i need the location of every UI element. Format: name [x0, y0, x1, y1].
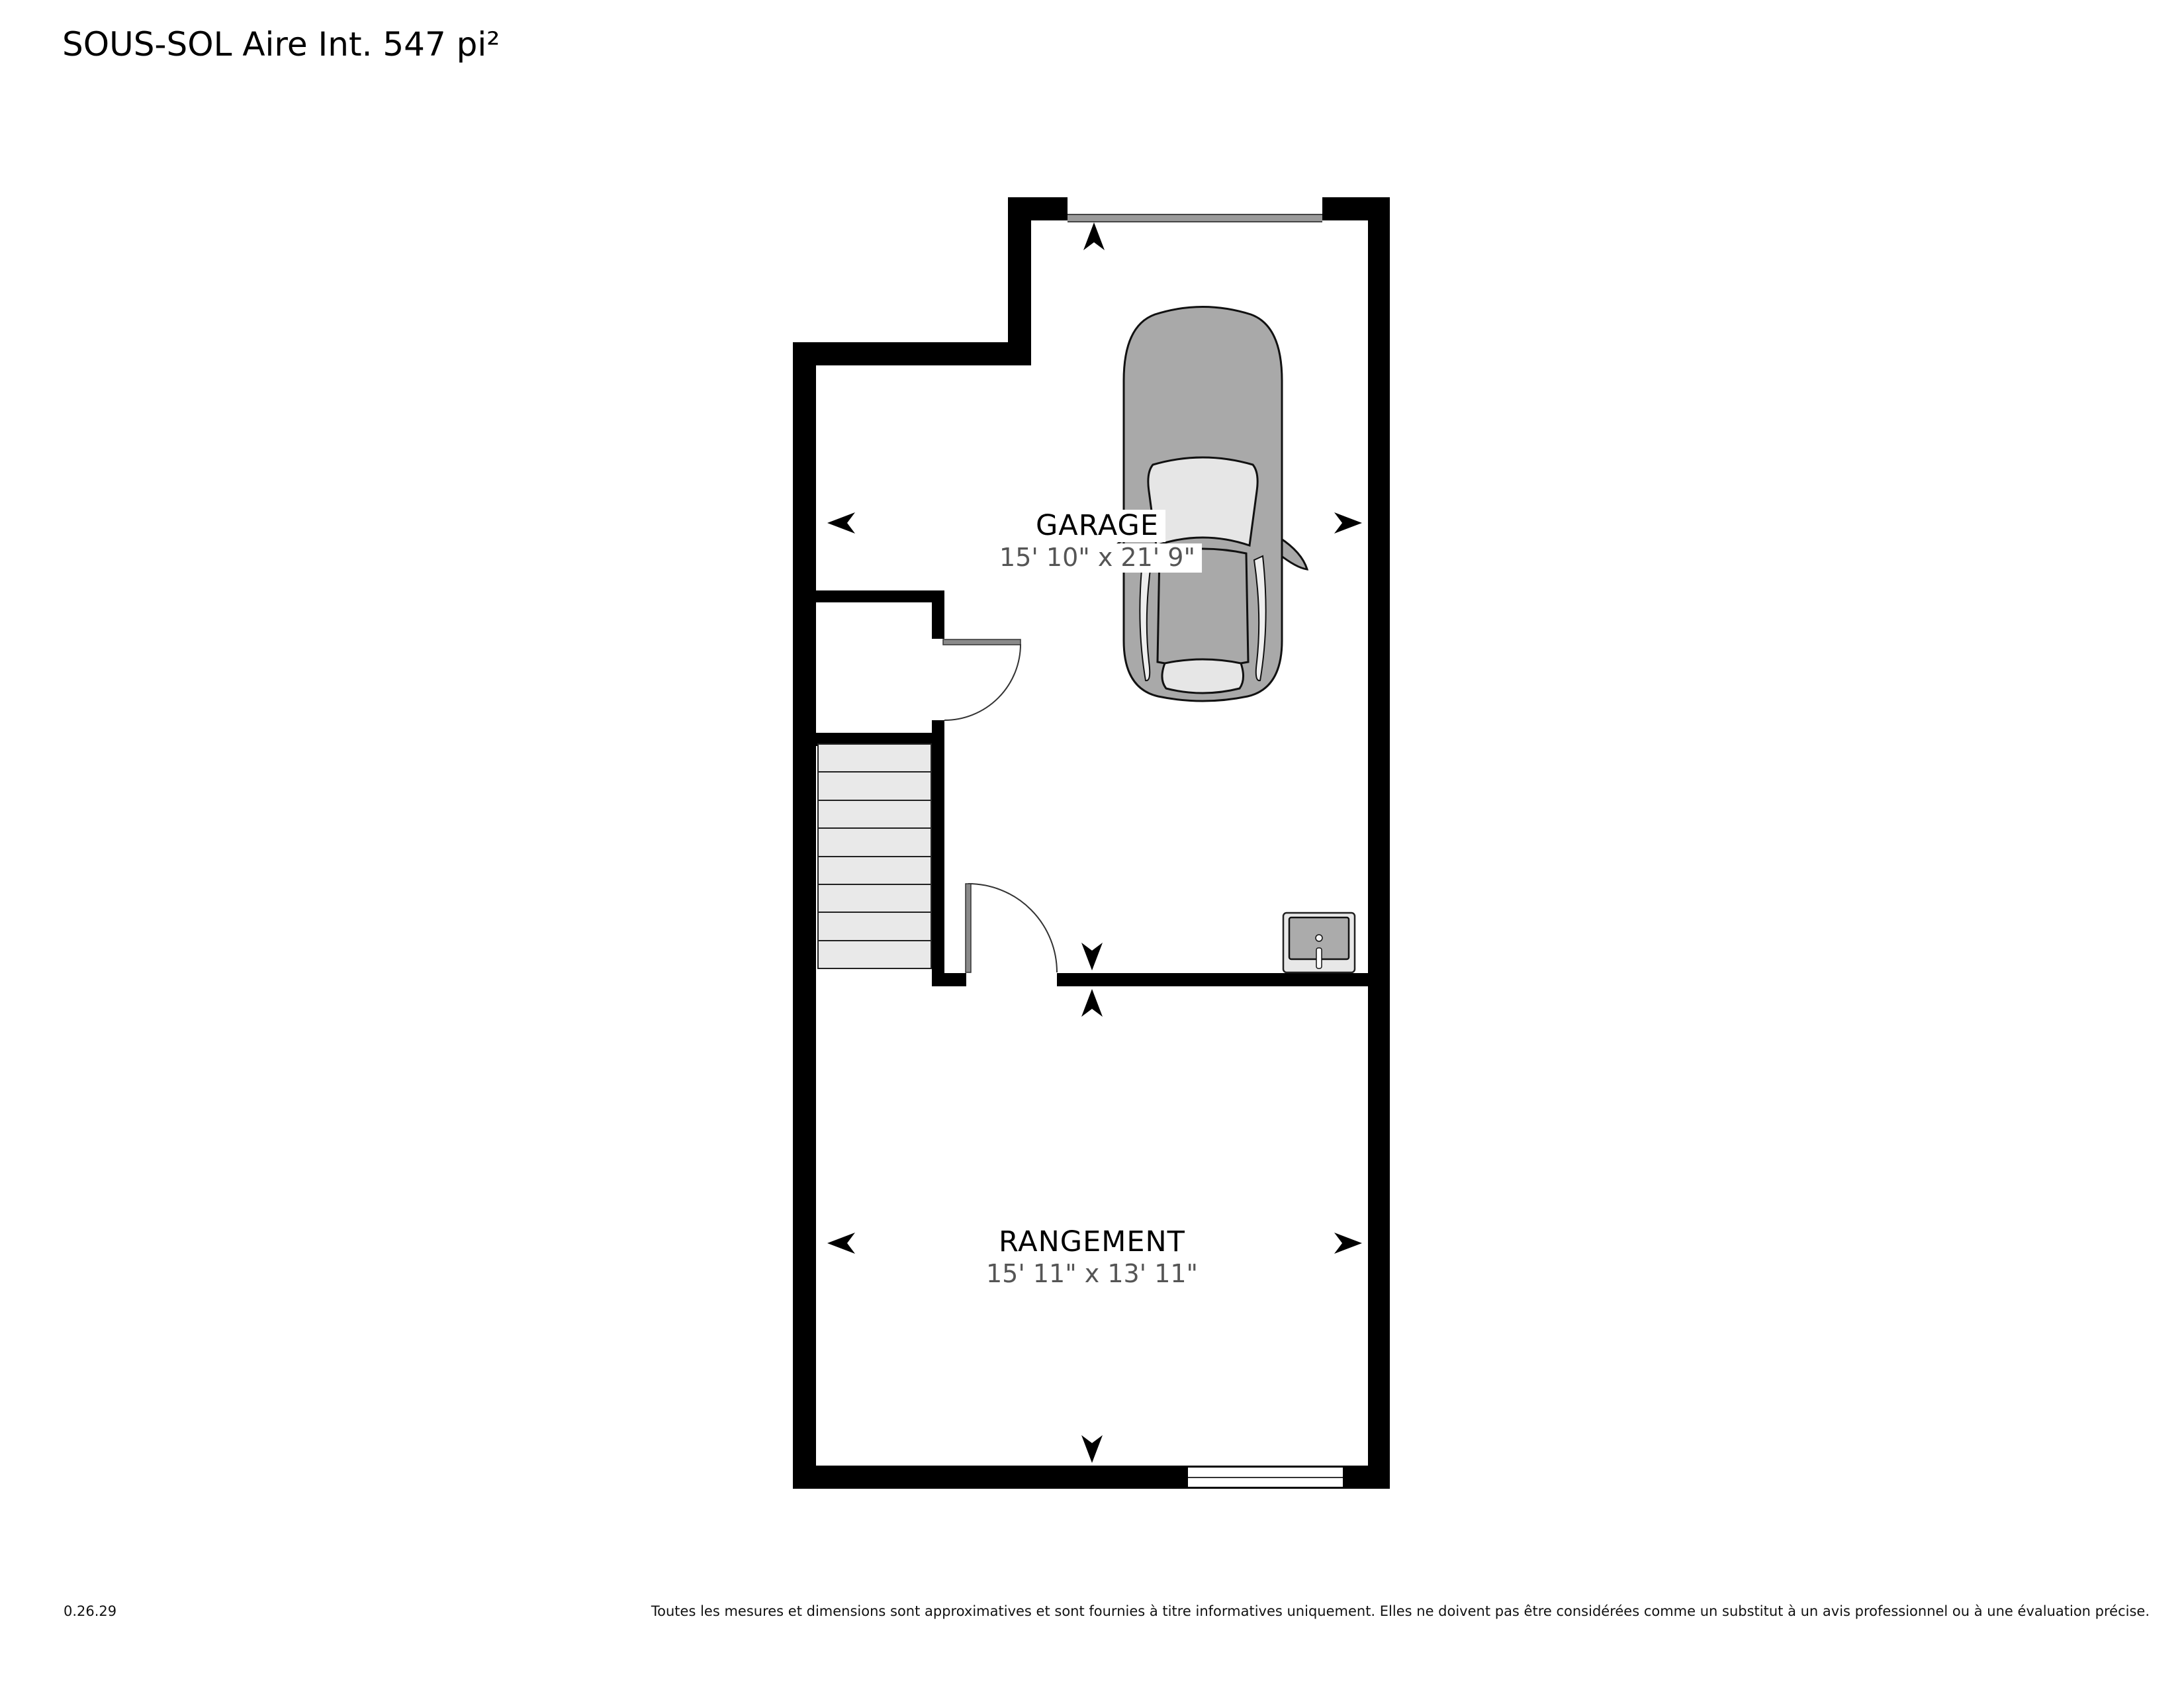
arrow-right-icon: [1334, 512, 1362, 534]
arrow-down-icon: [1081, 1435, 1103, 1463]
version-label: 0.26.29: [64, 1603, 116, 1619]
room-name: RANGEMENT: [992, 1226, 1192, 1258]
room-label-rangement: RANGEMENT 15' 11" x 13' 11": [979, 1226, 1205, 1289]
arrow-right-icon: [1334, 1233, 1362, 1254]
room-label-garage: GARAGE 15' 10" x 21' 9": [993, 510, 1202, 573]
door-swing-interior-icon: [966, 884, 1057, 972]
car-icon: [1099, 307, 1307, 702]
plan-graphics: [0, 0, 2184, 1688]
arrow-up-icon: [1081, 989, 1103, 1017]
room-dimensions: 15' 10" x 21' 9": [993, 543, 1202, 573]
arrow-left-icon: [827, 512, 855, 534]
arrow-down-icon: [1081, 943, 1103, 970]
sink-icon: [1283, 913, 1355, 972]
room-name: GARAGE: [1029, 510, 1165, 542]
room-dimensions: 15' 11" x 13' 11": [979, 1260, 1205, 1289]
arrow-up-icon: [1083, 222, 1105, 250]
disclaimer-text: Toutes les mesures et dimensions sont ap…: [651, 1603, 2150, 1619]
door-swing-closet-icon: [943, 639, 1021, 720]
arrow-left-icon: [827, 1233, 855, 1254]
